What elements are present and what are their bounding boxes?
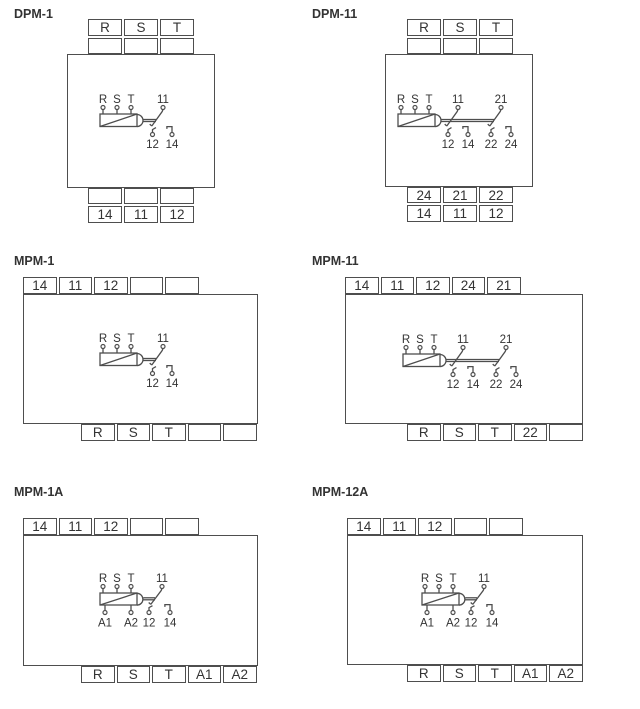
terminal-cell: R <box>88 19 122 36</box>
terminal-cell: S <box>443 19 477 36</box>
top-terminal-block: R S T <box>88 19 194 54</box>
terminal-cell <box>188 424 222 441</box>
terminal-cell: A1 <box>188 666 222 683</box>
terminal-cell <box>160 38 194 54</box>
terminal-cell <box>489 518 523 535</box>
aux-terminals: A1 A2 <box>420 605 460 630</box>
svg-text:S: S <box>113 94 121 106</box>
coupling-arc <box>440 355 446 367</box>
phase-monitor-circuit: R S T 11 12 <box>393 88 538 152</box>
changeover-contact-1: 11 12 14 <box>442 94 475 151</box>
top-terminal-strip: 14 11 12 24 21 <box>345 277 521 294</box>
aux-terminals: A1 A2 <box>98 605 138 630</box>
svg-text:S: S <box>113 573 121 585</box>
svg-text:12: 12 <box>146 139 159 151</box>
coupling-arc <box>137 115 143 127</box>
svg-text:A1: A1 <box>420 618 434 630</box>
svg-text:T: T <box>127 333 134 345</box>
changeover-contact-1: 11 12 14 <box>143 573 177 630</box>
svg-text:A2: A2 <box>124 618 138 630</box>
terminal-cell: R <box>407 19 441 36</box>
terminal-cell: T <box>152 666 186 683</box>
terminal-cell: 12 <box>94 518 128 535</box>
svg-text:12: 12 <box>146 378 159 390</box>
terminal-cell <box>549 424 583 441</box>
coupling-arc <box>137 354 143 366</box>
phase-monitor-circuit: R S T A1 A2 11 <box>95 567 190 631</box>
terminal-cell: A2 <box>223 666 257 683</box>
terminal-cell: 14 <box>88 206 122 223</box>
svg-text:14: 14 <box>166 378 179 390</box>
terminal-cell: S <box>443 665 477 682</box>
terminal-cell: 12 <box>418 518 452 535</box>
coupling-arc <box>137 593 143 605</box>
terminal-cell: A1 <box>514 665 548 682</box>
contact-blade <box>452 350 463 367</box>
svg-text:11: 11 <box>157 94 169 106</box>
svg-text:R: R <box>397 94 405 106</box>
terminal-cell <box>165 518 199 535</box>
svg-text:22: 22 <box>490 379 503 391</box>
contact-blade <box>152 110 163 127</box>
phase-monitor-circuit: R S T A1 A2 11 <box>417 567 512 631</box>
top-terminal-block: R S T <box>407 19 513 54</box>
terminal-cell: 14 <box>345 277 379 294</box>
supply-inputs: R S T <box>421 573 457 593</box>
svg-text:21: 21 <box>495 94 508 106</box>
svg-text:A1: A1 <box>98 618 112 630</box>
connection-diagrams-page: DPM-1 R S T 14 11 12 R S T <box>0 0 640 709</box>
terminal-cell: T <box>478 665 512 682</box>
changeover-contact-2: 21 22 24 <box>485 94 518 151</box>
monitor-box <box>100 353 156 366</box>
top-terminal-strip: 14 11 12 <box>23 277 199 294</box>
top-terminal-strip: 14 11 12 <box>347 518 523 535</box>
terminal-cell <box>124 38 158 54</box>
coupling-arc <box>435 115 441 127</box>
svg-text:11: 11 <box>157 333 169 345</box>
terminal-cell: 12 <box>94 277 128 294</box>
svg-text:14: 14 <box>486 618 499 630</box>
contact-blade <box>495 350 506 367</box>
svg-text:22: 22 <box>485 139 498 151</box>
svg-text:R: R <box>99 333 107 345</box>
terminal-cell: 14 <box>23 277 57 294</box>
contact-blade <box>473 589 484 605</box>
svg-text:14: 14 <box>462 139 475 151</box>
monitor-box <box>100 114 156 127</box>
svg-text:21: 21 <box>500 334 513 346</box>
contact-blade <box>152 349 163 366</box>
svg-text:T: T <box>430 334 437 346</box>
svg-text:S: S <box>435 573 443 585</box>
coupling-arc <box>459 593 465 605</box>
changeover-contact-1: 11 12 14 <box>465 573 499 630</box>
terminal-cell <box>88 38 122 54</box>
bottom-terminal-strip: R S T 22 <box>407 424 583 441</box>
terminal-cell <box>130 277 164 294</box>
terminal-cell: 22 <box>479 187 513 203</box>
terminal-cell: 11 <box>59 518 93 535</box>
terminal-cell: R <box>81 666 115 683</box>
contact-blade <box>490 110 501 127</box>
terminal-cell: T <box>152 424 186 441</box>
terminal-cell <box>223 424 257 441</box>
changeover-contact-2: 21 22 24 <box>490 334 523 391</box>
terminal-cell: 12 <box>479 205 513 222</box>
svg-text:S: S <box>416 334 424 346</box>
terminal-cell: 11 <box>381 277 415 294</box>
terminal-cell: 14 <box>407 205 441 222</box>
terminal-cell: S <box>124 19 158 36</box>
terminal-cell: S <box>117 424 151 441</box>
terminal-cell <box>124 188 158 204</box>
terminal-cell <box>165 277 199 294</box>
svg-text:R: R <box>421 573 429 585</box>
svg-text:14: 14 <box>467 379 480 391</box>
svg-text:12: 12 <box>465 618 478 630</box>
terminal-cell: 11 <box>124 206 158 223</box>
terminal-cell: 11 <box>59 277 93 294</box>
changeover-contact-1: 11 12 14 <box>447 334 480 391</box>
supply-inputs: R S T <box>99 333 135 353</box>
terminal-cell: 21 <box>487 277 521 294</box>
svg-text:R: R <box>99 573 107 585</box>
unit-title: MPM-1 <box>14 254 54 268</box>
unit-title: MPM-12A <box>312 485 368 499</box>
svg-text:12: 12 <box>447 379 460 391</box>
svg-text:R: R <box>402 334 410 346</box>
svg-text:11: 11 <box>478 573 490 585</box>
terminal-cell: S <box>117 666 151 683</box>
svg-text:T: T <box>127 94 134 106</box>
changeover-contact-1: 11 12 14 <box>146 333 179 390</box>
terminal-cell: S <box>443 424 477 441</box>
unit-title: DPM-11 <box>312 7 357 21</box>
bottom-terminal-block: 14 11 12 <box>88 188 194 223</box>
svg-text:A2: A2 <box>446 618 460 630</box>
terminal-cell <box>454 518 488 535</box>
terminal-cell <box>443 38 477 54</box>
terminal-cell: 24 <box>407 187 441 203</box>
terminal-cell: R <box>407 424 441 441</box>
terminal-cell <box>407 38 441 54</box>
terminal-cell: 14 <box>347 518 381 535</box>
svg-text:11: 11 <box>457 334 469 346</box>
supply-inputs: R S T <box>99 94 135 114</box>
terminal-cell <box>479 38 513 54</box>
svg-text:12: 12 <box>442 139 455 151</box>
svg-text:12: 12 <box>143 618 156 630</box>
unit-title: MPM-11 <box>312 254 359 268</box>
terminal-cell: 11 <box>383 518 417 535</box>
bottom-terminal-strip: R S T A1 A2 <box>81 666 257 683</box>
terminal-cell <box>160 188 194 204</box>
svg-text:R: R <box>99 94 107 106</box>
terminal-cell: 11 <box>443 205 477 222</box>
svg-text:T: T <box>127 573 134 585</box>
terminal-cell: 24 <box>452 277 486 294</box>
bottom-terminal-strip: R S T <box>81 424 257 441</box>
changeover-contact-1: 11 12 14 <box>146 94 179 151</box>
monitor-box <box>422 593 477 605</box>
contact-blade <box>447 110 458 127</box>
terminal-cell: R <box>81 424 115 441</box>
phase-monitor-circuit: R S T 11 12 <box>95 327 190 391</box>
bottom-terminal-block: 24 21 22 14 11 12 <box>407 187 513 222</box>
terminal-cell: 14 <box>23 518 57 535</box>
terminal-cell: T <box>478 424 512 441</box>
top-terminal-strip: 14 11 12 <box>23 518 199 535</box>
svg-text:14: 14 <box>166 139 179 151</box>
svg-text:24: 24 <box>505 139 518 151</box>
phase-monitor-circuit: R S T 11 12 <box>398 328 543 392</box>
supply-inputs: R S T <box>402 334 438 354</box>
monitor-box <box>100 593 155 605</box>
terminal-cell: 21 <box>443 187 477 203</box>
bottom-terminal-strip: R S T A1 A2 <box>407 665 583 682</box>
svg-text:11: 11 <box>452 94 464 106</box>
terminal-cell: 22 <box>514 424 548 441</box>
svg-text:T: T <box>449 573 456 585</box>
terminal-cell: T <box>479 19 513 36</box>
svg-text:S: S <box>411 94 419 106</box>
unit-title: MPM-1A <box>14 485 63 499</box>
svg-text:S: S <box>113 333 121 345</box>
terminal-cell <box>88 188 122 204</box>
terminal-cell: 12 <box>416 277 450 294</box>
terminal-cell: T <box>160 19 194 36</box>
unit-title: DPM-1 <box>14 7 53 21</box>
svg-text:14: 14 <box>164 618 177 630</box>
contact-blade <box>151 589 162 605</box>
supply-inputs: R S T <box>99 573 135 593</box>
svg-text:T: T <box>425 94 432 106</box>
terminal-cell: R <box>407 665 441 682</box>
supply-inputs: R S T <box>397 94 433 114</box>
terminal-cell: 12 <box>160 206 194 223</box>
svg-text:24: 24 <box>510 379 523 391</box>
svg-text:11: 11 <box>156 573 168 585</box>
terminal-cell: A2 <box>549 665 583 682</box>
terminal-cell <box>130 518 164 535</box>
phase-monitor-circuit: R S T 11 12 <box>95 88 190 152</box>
